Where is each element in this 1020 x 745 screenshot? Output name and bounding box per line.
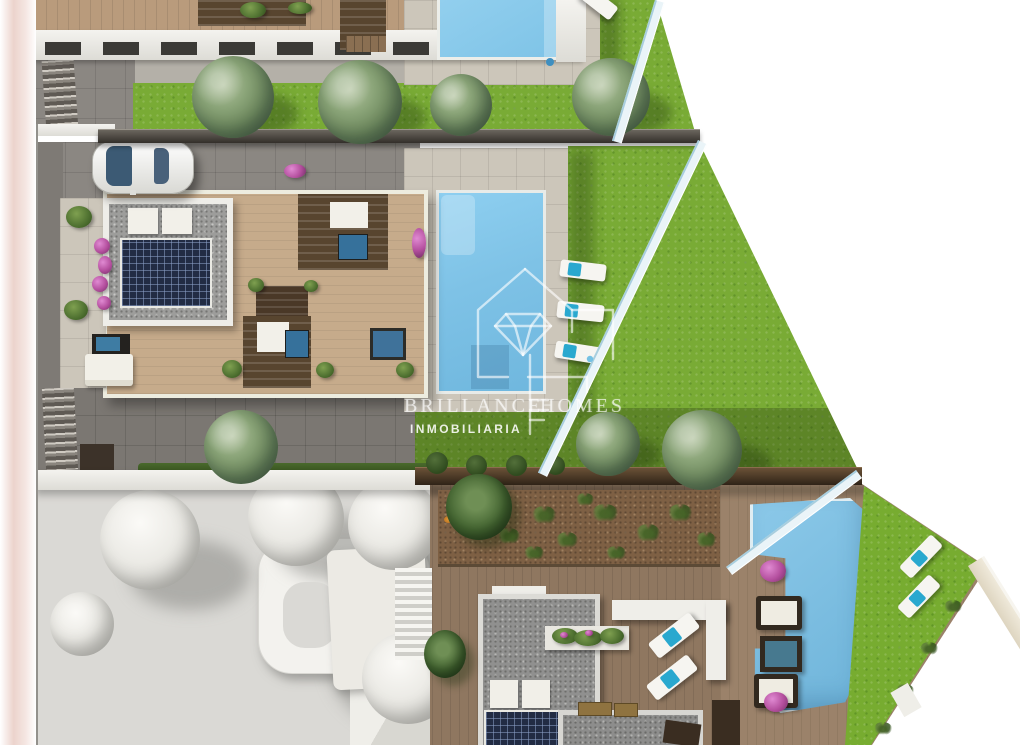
bougainvillea — [284, 164, 306, 178]
armchair — [756, 596, 802, 630]
planter-top-2 — [288, 2, 312, 14]
palm-tree — [446, 474, 512, 540]
olive-tree — [204, 410, 278, 484]
watermark: BRILLANCE HOMES INMOBILIARIA — [390, 262, 680, 462]
terrace-plant — [316, 362, 334, 378]
page-edge-gradient — [0, 0, 36, 745]
pergola-bedroom-2 — [243, 316, 311, 388]
bougainvillea — [94, 238, 110, 254]
path-shrub — [874, 722, 892, 735]
stone-block — [346, 36, 386, 52]
storage-box — [80, 444, 114, 470]
court-plant — [248, 278, 264, 292]
parapet-slot — [161, 42, 197, 55]
desert-plant — [668, 504, 692, 522]
desert-plant — [524, 546, 544, 560]
bougainvillea — [98, 256, 112, 274]
olive-tree — [430, 74, 492, 136]
solar-panel-array — [120, 238, 212, 308]
skylight — [614, 703, 638, 717]
desert-plant — [556, 532, 578, 548]
planter-hedge — [600, 628, 624, 644]
parapet-slot — [277, 42, 313, 55]
bench-wall-l-arm — [706, 600, 726, 680]
parapet-slot — [393, 42, 429, 55]
palm-tree — [424, 630, 466, 678]
daybed-blue — [338, 234, 368, 260]
terrace-plant — [222, 360, 242, 378]
car — [92, 140, 192, 192]
car-windshield — [106, 146, 132, 186]
potted-plant — [66, 206, 92, 228]
pool-light-patch — [441, 195, 475, 255]
white-tree — [348, 478, 440, 570]
bed-blue — [285, 330, 309, 358]
outdoor-stool — [712, 700, 740, 745]
potted-plant — [64, 300, 88, 320]
stairs-top-left — [42, 59, 79, 131]
watermark-brand-word1: BRILLANCE — [404, 395, 543, 418]
desert-plant — [636, 524, 660, 542]
tv-screen — [96, 337, 120, 351]
white-tree — [100, 490, 200, 590]
pergola-bedroom-1 — [298, 194, 388, 270]
watermark-brand-word2: HOMES — [540, 395, 625, 418]
roof-pad — [162, 208, 192, 234]
roof-pad — [128, 208, 158, 234]
bougainvillea — [92, 276, 108, 292]
bougainvillea — [412, 228, 426, 258]
car-rear-glass — [154, 148, 169, 184]
olive-tree — [318, 60, 402, 144]
parapet-slot — [219, 42, 255, 55]
desert-plant — [532, 506, 556, 524]
bougainvillea — [764, 692, 788, 712]
pool-cleaner — [546, 58, 554, 66]
planter-top-1 — [240, 2, 266, 18]
outdoor-tv — [92, 334, 130, 354]
stairs-lower — [42, 387, 78, 471]
site-plan-render: BRILLANCE HOMES INMOBILIARIA — [0, 0, 1020, 745]
outdoor-stool — [663, 720, 702, 745]
bougainvillea — [760, 560, 786, 582]
roof-pad — [522, 680, 550, 708]
olive-tree — [192, 56, 274, 138]
desert-plant — [606, 546, 626, 560]
planter-flowers — [585, 630, 593, 636]
path-shrub — [944, 600, 962, 613]
white-tree — [50, 592, 114, 656]
desert-plant — [576, 493, 594, 506]
coffee-table — [760, 636, 802, 672]
parapet-slot — [45, 42, 81, 55]
roof-pad — [490, 680, 518, 708]
planter-flowers — [560, 632, 568, 638]
bougainvillea — [97, 296, 111, 310]
path-shrub — [920, 642, 938, 655]
desert-plant — [592, 504, 618, 522]
outdoor-sofa — [85, 354, 133, 386]
car-mirror — [130, 190, 136, 195]
skylight — [578, 702, 612, 716]
parapet-slot — [103, 42, 139, 55]
daybed-white — [330, 202, 368, 228]
desert-plant — [696, 532, 716, 548]
white-column — [556, 0, 586, 62]
watermark-subtitle: INMOBILIARIA — [410, 422, 522, 436]
court-plant — [304, 280, 318, 292]
brand-logo-house-diamond-key-icon — [470, 262, 630, 447]
